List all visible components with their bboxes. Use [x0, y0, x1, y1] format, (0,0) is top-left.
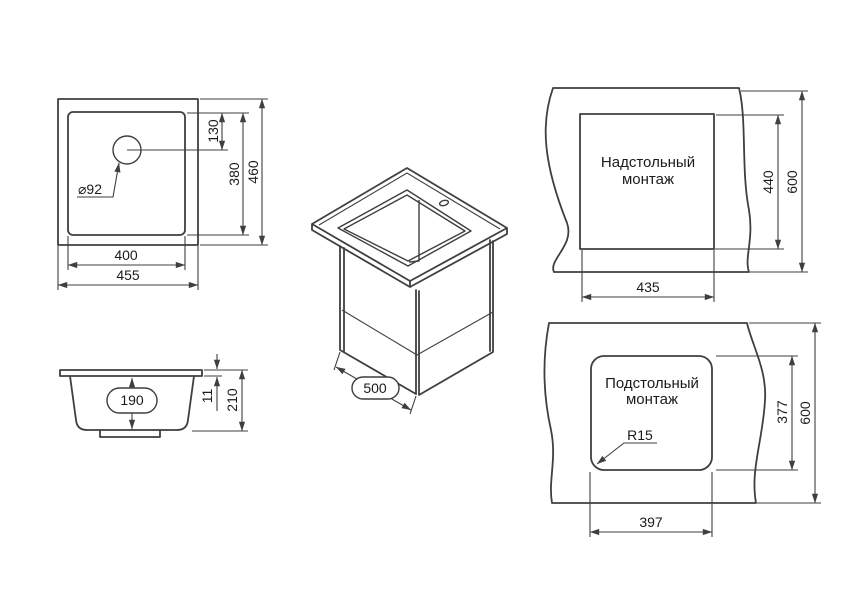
iso-view: 500 — [312, 168, 507, 414]
radius-callout-leader — [597, 443, 657, 464]
dim-label-inner-width: 400 — [114, 247, 138, 263]
dim-label-inner-height: 380 — [226, 162, 242, 186]
dim-label-rim-height: 11 — [199, 389, 215, 404]
topmount-title-line2: монтаж — [622, 171, 674, 188]
dim-label-counter-depth-under: 600 — [797, 401, 813, 425]
plan-bowl-rect — [68, 112, 185, 235]
section-rim — [60, 370, 202, 376]
undermount-title-line1: Подстольный — [605, 375, 699, 392]
undermount-view: Подстольный монтаж R15 397 377 600 — [544, 323, 821, 537]
dim-label-total-height: 210 — [224, 388, 240, 412]
undermount-title-line2: монтаж — [626, 391, 678, 408]
dim-label-outer-height: 460 — [245, 160, 261, 184]
dim-label-cutout-width-top: 435 — [636, 279, 660, 295]
dim-label-counter-depth-top: 600 — [784, 170, 800, 194]
dim-label-cabinet-depth: 500 — [363, 380, 387, 396]
iso-plate-edge-lines — [319, 173, 500, 229]
iso-basin-interior — [409, 200, 419, 262]
topmount-title-line1: Надстольный — [601, 154, 695, 171]
iso-cabinet-interior-lines — [342, 310, 493, 355]
plan-outer-rect — [58, 99, 198, 245]
undermount-cutout — [591, 356, 712, 470]
topmount-extension-lines — [582, 91, 808, 302]
dim-label-cutout-height-top: 440 — [760, 170, 776, 194]
undermount-counter — [544, 323, 765, 503]
iso-plate — [312, 168, 507, 287]
iso-faucet-hole — [439, 199, 449, 206]
section-drain-flange — [100, 430, 160, 437]
dim-label-outer-width: 455 — [116, 267, 140, 283]
dim-label-cutout-width-under: 397 — [639, 514, 663, 530]
topmount-view: Надстольный монтаж 435 440 600 — [546, 88, 808, 302]
dim-label-corner-radius: R15 — [627, 427, 653, 443]
plan-view: ⌀92 130 380 460 400 455 — [58, 99, 268, 290]
section-view: 190 11 210 — [60, 354, 248, 437]
dim-label-cutout-height-under: 377 — [774, 400, 790, 424]
dim-label-hole-offset: 130 — [205, 119, 221, 143]
iso-cabinet — [340, 240, 493, 395]
dim-label-hole-diameter: ⌀92 — [78, 181, 102, 197]
dim-label-bowl-depth: 190 — [120, 392, 144, 408]
sink-dimension-drawing: ⌀92 130 380 460 400 455 190 11 210 — [0, 0, 860, 611]
technical-drawing-canvas: ⌀92 130 380 460 400 455 190 11 210 — [0, 0, 860, 611]
